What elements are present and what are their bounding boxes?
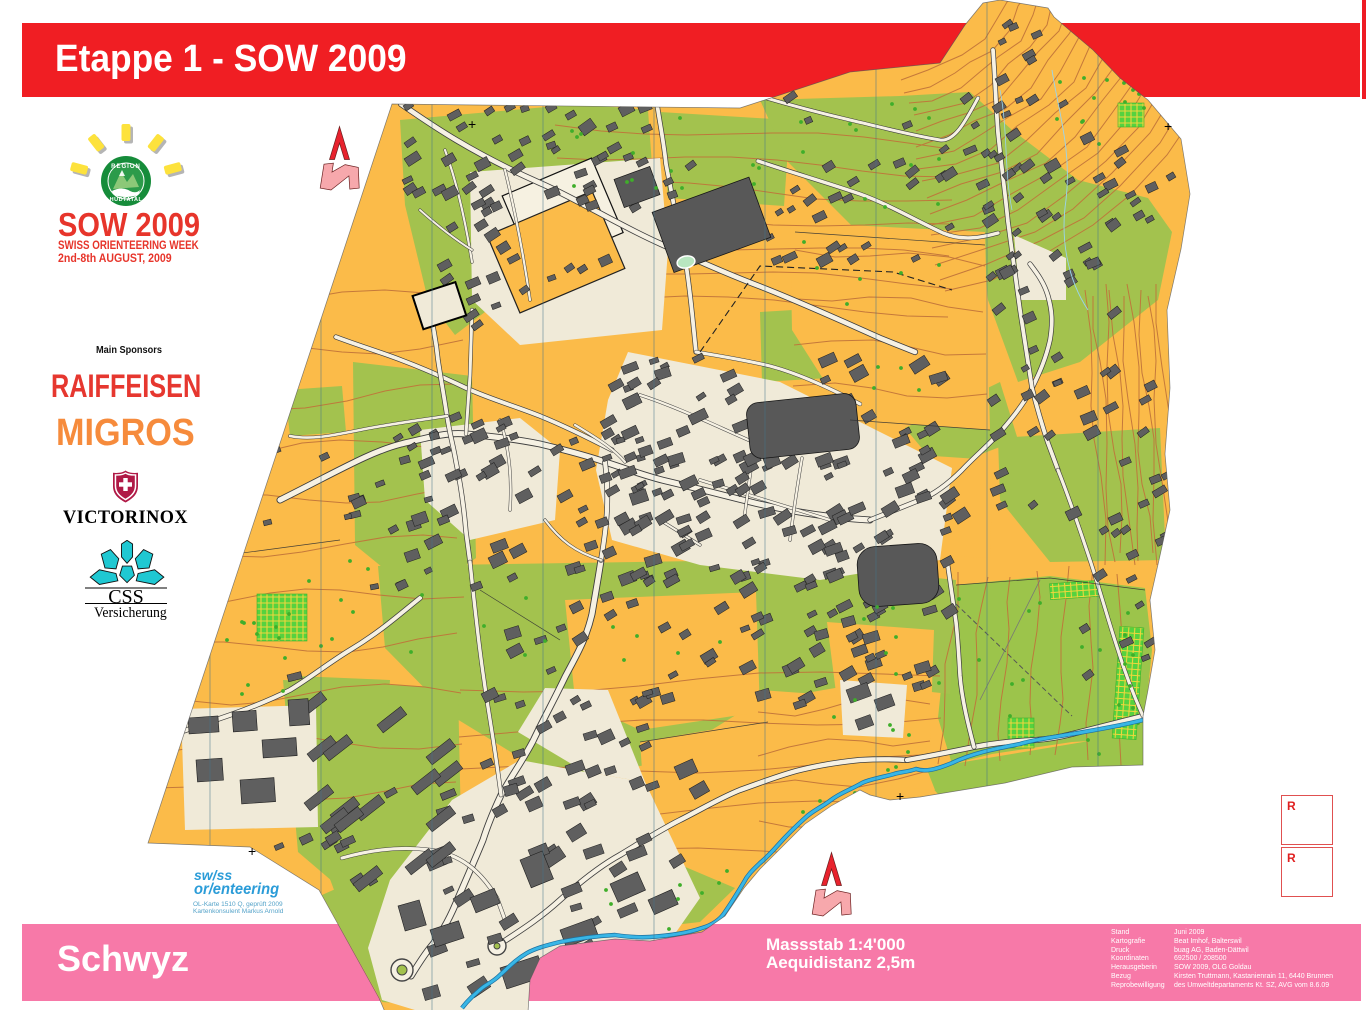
svg-text:HUDTATAL: HUDTATAL (110, 197, 143, 203)
svg-text:REGION: REGION (111, 164, 141, 170)
